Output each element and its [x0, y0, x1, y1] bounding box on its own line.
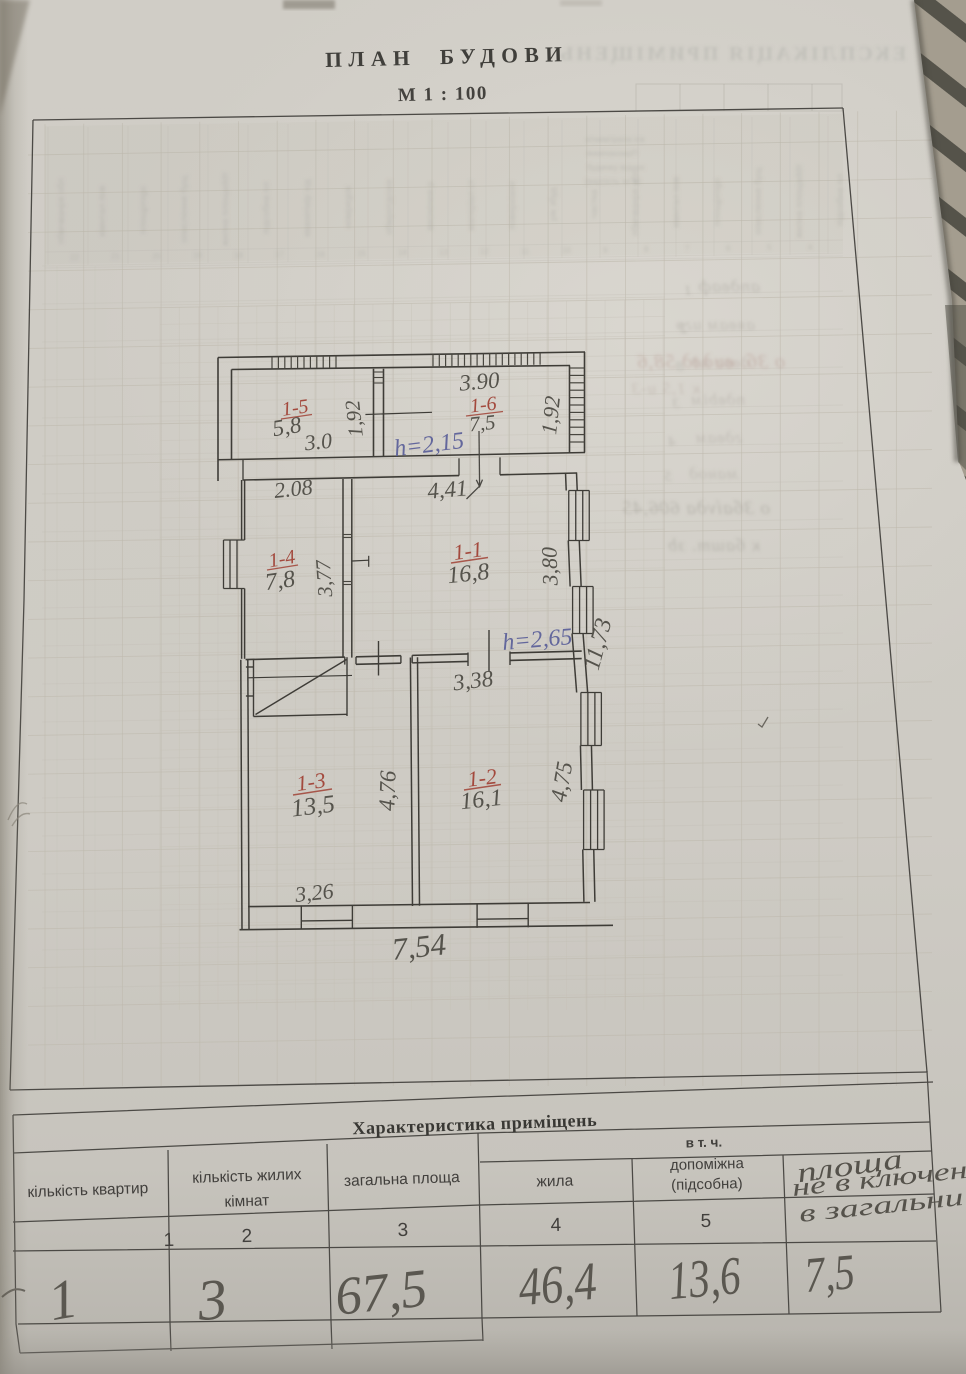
- svg-text:46,4: 46,4: [516, 1251, 599, 1318]
- svg-text:7,8: 7,8: [263, 566, 296, 596]
- svg-text:3: 3: [672, 396, 681, 412]
- svg-text:7,5: 7,5: [468, 410, 497, 437]
- svg-text:3,77: 3,77: [311, 558, 338, 599]
- svg-text:загальна площа: загальна площа: [344, 1169, 461, 1190]
- svg-text:в т. ч.: в т. ч.: [685, 1135, 722, 1151]
- svg-text:3,80: 3,80: [536, 547, 562, 587]
- svg-text:13,6: 13,6: [666, 1245, 743, 1311]
- svg-text:кількість жилих: кількість жилих: [192, 1166, 302, 1187]
- svg-text:(підсобна): (підсобна): [671, 1175, 743, 1194]
- svg-text:4,75: 4,75: [546, 760, 578, 804]
- svg-text:4: 4: [668, 434, 676, 450]
- svg-text:5,8: 5,8: [271, 412, 304, 441]
- svg-text:манод: манод: [688, 464, 739, 483]
- svg-text:4: 4: [550, 1215, 562, 1236]
- svg-text:16,1: 16,1: [459, 785, 503, 815]
- svg-text:2.08: 2.08: [273, 474, 314, 503]
- svg-text:7,5: 7,5: [802, 1243, 857, 1303]
- svg-text:кімнат: кімнат: [224, 1192, 269, 1211]
- svg-text:жила: жила: [536, 1173, 574, 1191]
- svg-text:1: 1: [163, 1230, 174, 1251]
- svg-text:13,5: 13,5: [290, 790, 337, 822]
- svg-text:гдвам: гдвам: [695, 428, 742, 447]
- svg-text:ПЛАН БУДОВИ: ПЛАН БУДОВИ: [325, 42, 569, 72]
- svg-text:3: 3: [397, 1220, 408, 1241]
- svg-text:ЕКСПЛІКАЦІЯ ПРИМІЩЕНЬ: ЕКСПЛІКАЦІЯ ПРИМІЩЕНЬ: [557, 43, 906, 65]
- svg-text:М 1 : 100: М 1 : 100: [398, 83, 489, 106]
- svg-text:апдваф: апдваф: [697, 276, 760, 296]
- svg-text:к башт. зb: к башт. зb: [667, 535, 760, 555]
- svg-text:1: 1: [684, 283, 692, 299]
- svg-text:5: 5: [700, 1211, 711, 1232]
- svg-text:о Збаívда 606,45: о Збаívда 606,45: [621, 498, 770, 519]
- svg-text:о Зб. видлд 58,6: о Зб. видлд 58,6: [636, 351, 785, 373]
- svg-text:3: 3: [194, 1266, 230, 1333]
- svg-text:4,76: 4,76: [374, 770, 400, 812]
- svg-text:допоміжна: допоміжна: [670, 1155, 745, 1174]
- svg-text:5: 5: [664, 469, 672, 485]
- svg-text:кількість квартир: кількість квартир: [27, 1180, 148, 1201]
- svg-text:3.90: 3.90: [457, 367, 501, 396]
- svg-text:16,8: 16,8: [446, 559, 490, 589]
- svg-text:11,73: 11,73: [579, 616, 618, 673]
- svg-text:3,26: 3,26: [293, 878, 335, 907]
- svg-text:67,5: 67,5: [332, 1257, 430, 1326]
- svg-text:3.0: 3.0: [302, 428, 333, 456]
- svg-text:2: 2: [241, 1226, 252, 1247]
- svg-text:4,41: 4,41: [426, 475, 468, 503]
- svg-text:к 1,5 и-3: к 1,5 и-3: [631, 379, 700, 398]
- svg-text:1,92: 1,92: [340, 399, 368, 439]
- svg-text:Характеристика приміщень: Характеристика приміщень: [352, 1110, 597, 1139]
- svg-text:аявам иго: аявам иго: [675, 315, 755, 334]
- svg-text:3,38: 3,38: [451, 666, 495, 696]
- svg-text:7,54: 7,54: [390, 926, 448, 966]
- svg-text:1,92: 1,92: [536, 395, 565, 436]
